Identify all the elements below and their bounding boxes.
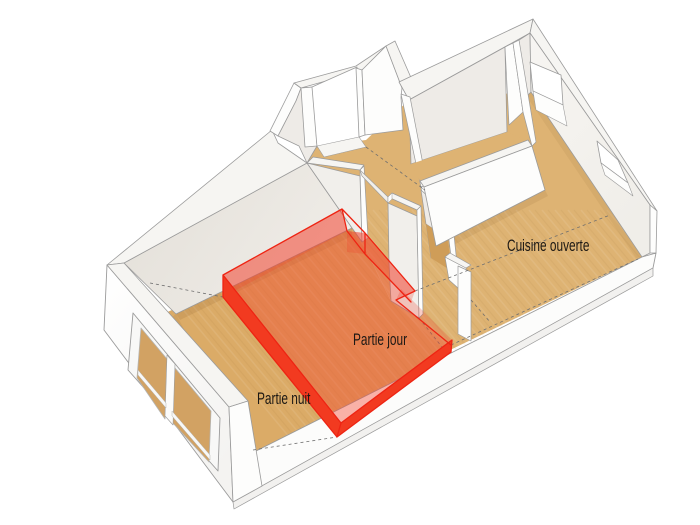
svg-text:Cuisine ouverte: Cuisine ouverte	[507, 237, 589, 255]
svg-text:Partie jour: Partie jour	[353, 331, 407, 349]
svg-text:Partie nuit: Partie nuit	[257, 390, 310, 408]
